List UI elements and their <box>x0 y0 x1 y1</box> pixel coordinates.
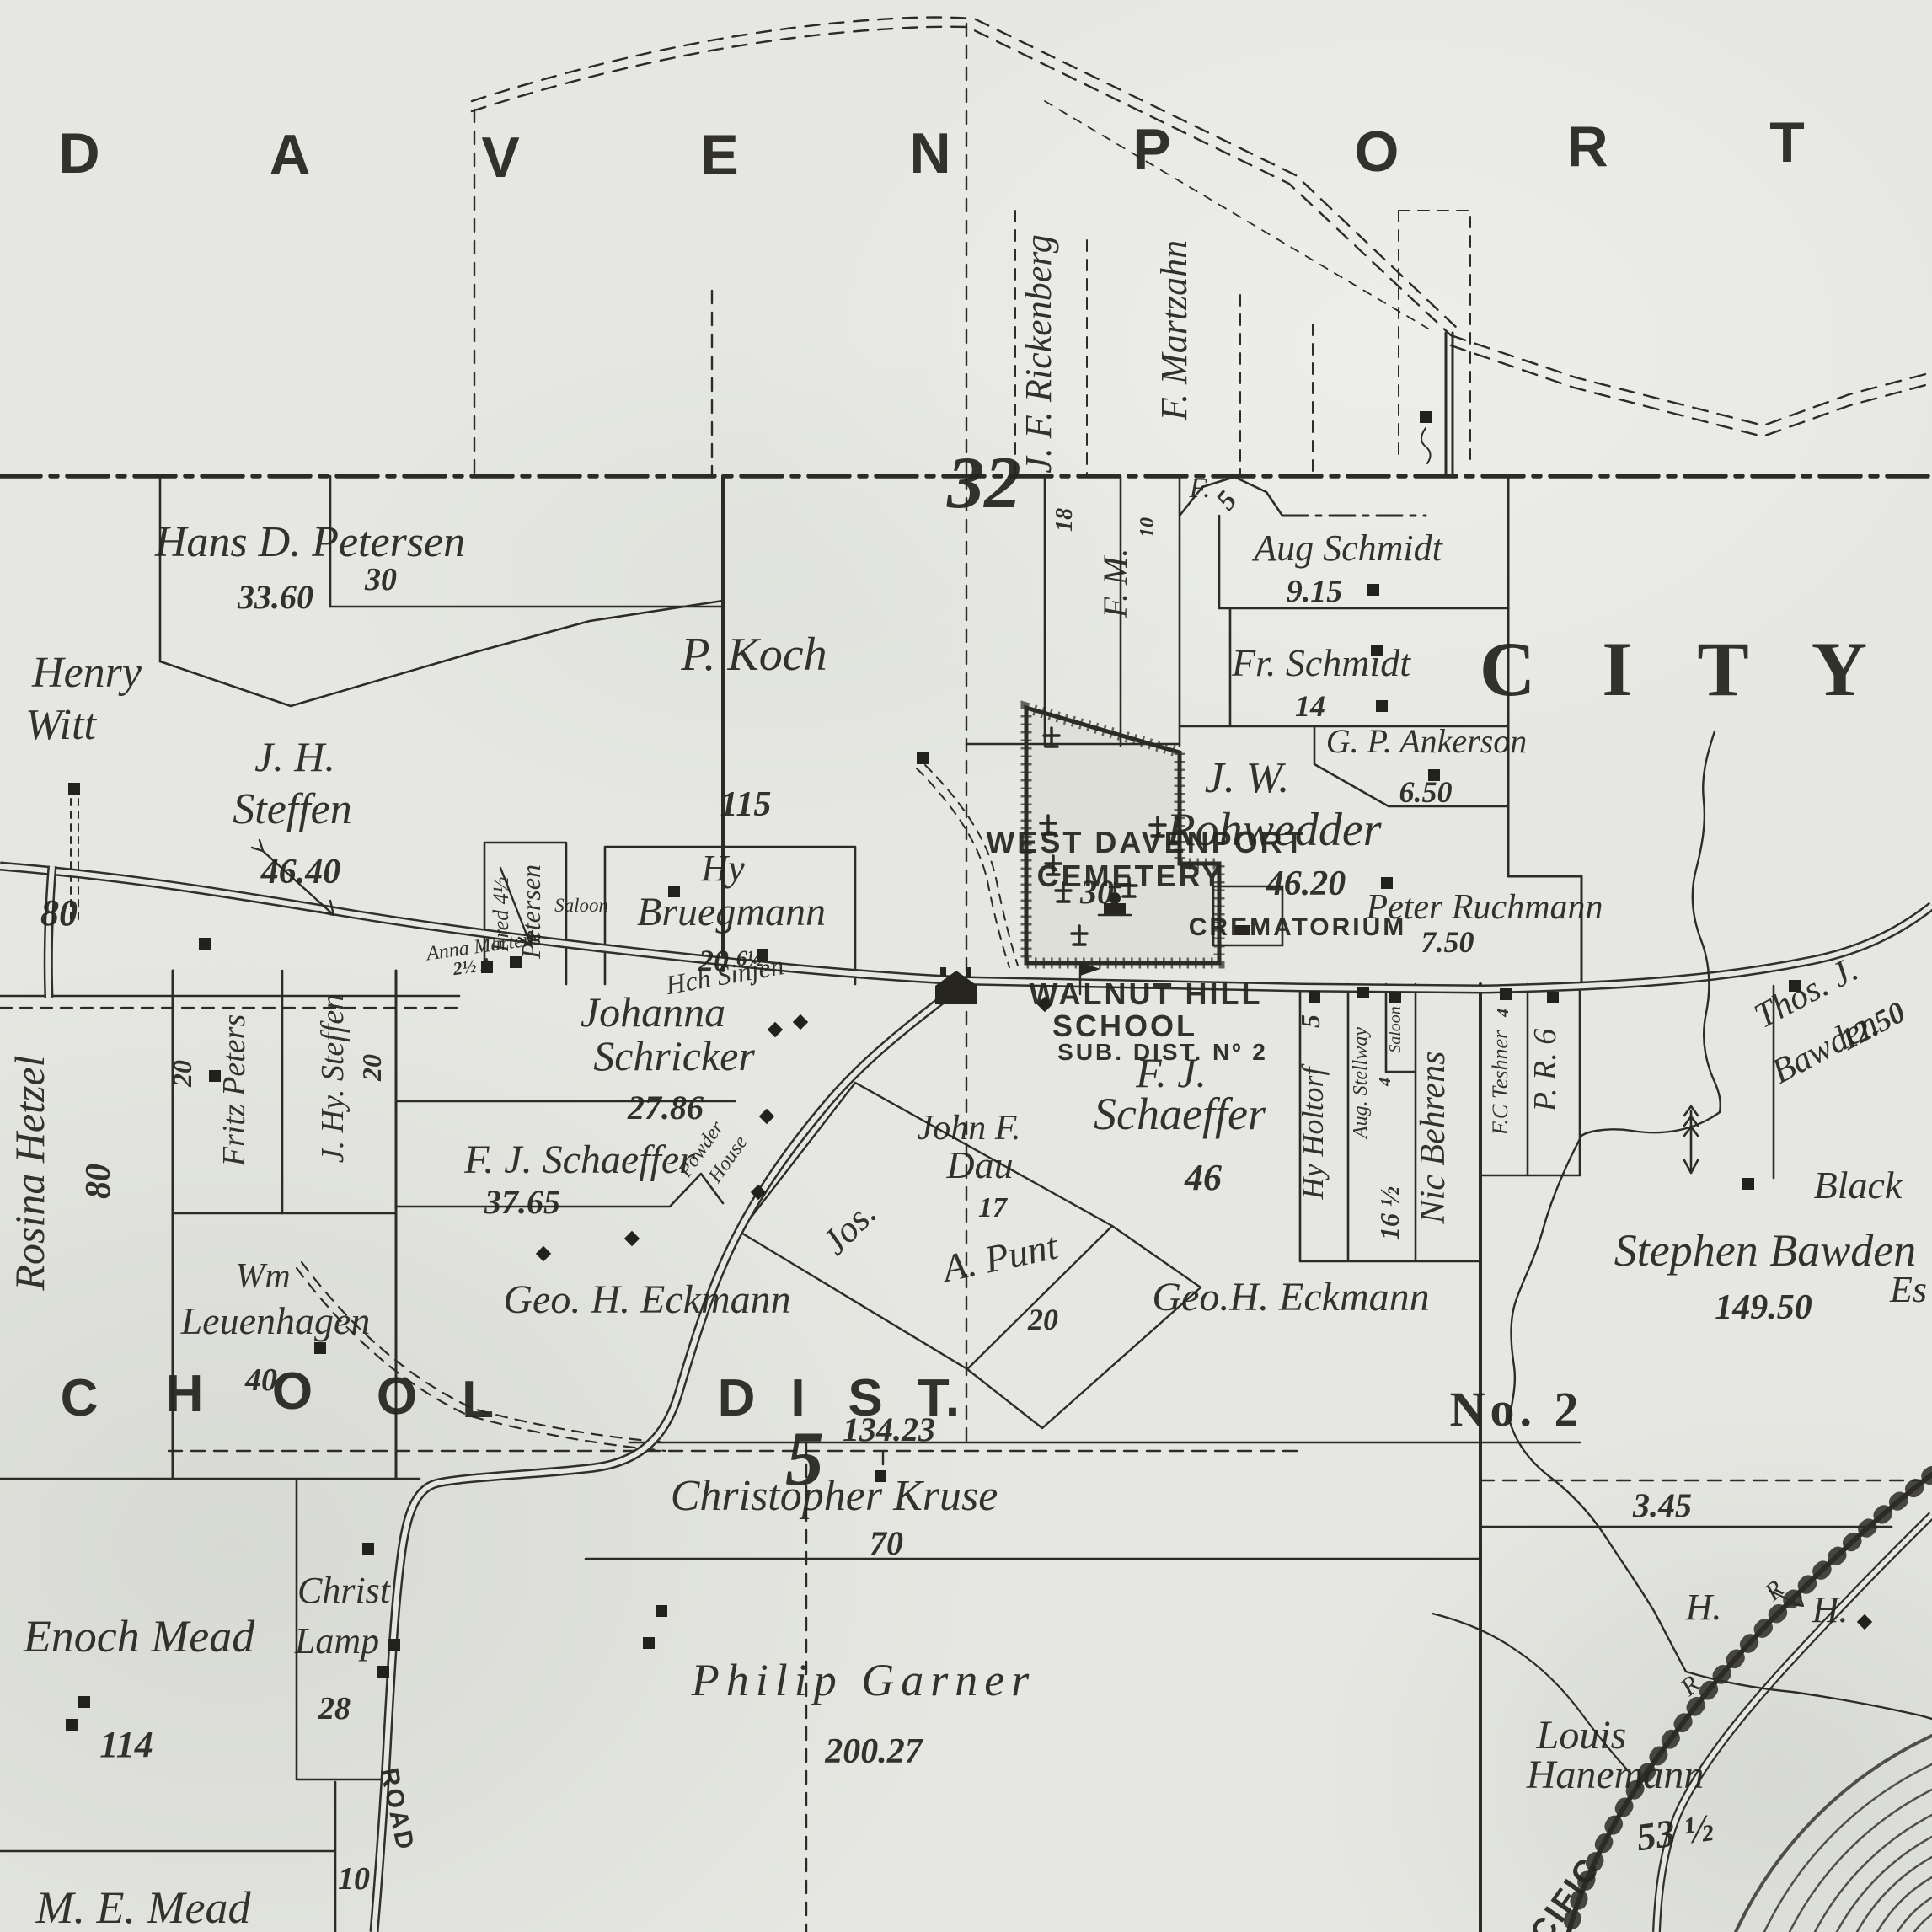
map-label: Philip Garner <box>691 1655 1036 1705</box>
map-label: 18 <box>1052 508 1078 532</box>
map-label: 46 <box>1184 1157 1222 1198</box>
map-label: Hanemann <box>1526 1753 1705 1797</box>
house-square-icon <box>377 1666 389 1678</box>
map-label: 7.50 <box>1421 925 1474 959</box>
map-label: 4 <box>1494 1009 1512 1018</box>
map-label: Geo. H. Eckmann <box>503 1277 790 1322</box>
railroad-parallel-road <box>1656 1515 1932 1932</box>
map-label: John F. <box>918 1109 1021 1148</box>
map-label: SCHOOL <box>1052 1009 1197 1043</box>
map-label: 33.60 <box>237 578 313 616</box>
map-label: H <box>166 1365 206 1423</box>
map-label: F. J. Schaeffer <box>463 1137 695 1182</box>
map-label: Christopher Kruse <box>671 1472 998 1520</box>
map-label: Fr. Schmidt <box>1231 641 1411 684</box>
map-label: H. <box>1685 1587 1722 1628</box>
map-label: Hans D. Petersen <box>154 518 465 566</box>
house-square-icon <box>78 1696 90 1708</box>
map-label: 3.45 <box>1632 1486 1692 1524</box>
house-square-icon <box>1357 987 1369 998</box>
map-label: P. R. 6 <box>1528 1029 1563 1113</box>
map-label: V <box>481 126 521 190</box>
house-square-icon <box>1376 700 1388 712</box>
house-diamond-icon <box>768 1022 783 1037</box>
map-label: Jos. <box>814 1192 885 1263</box>
map-label: R <box>1566 115 1609 179</box>
map-label: 10 <box>1137 517 1159 538</box>
house-diamond-icon <box>536 1246 551 1261</box>
map-label: 46.40 <box>260 853 341 891</box>
map-label: 17 <box>978 1192 1009 1223</box>
map-label: O <box>272 1362 314 1421</box>
map-label: 32 <box>946 442 1021 524</box>
map-label: 46.20 <box>1266 864 1346 903</box>
map-label: F.C Teshner <box>1488 1030 1512 1136</box>
house-square-icon <box>388 1639 400 1651</box>
map-label: Louis <box>1536 1713 1627 1758</box>
map-label: 80 <box>40 892 78 934</box>
house-diamond-icon <box>759 1109 774 1124</box>
map-label: P <box>1132 117 1172 181</box>
map-label: Schaeffer <box>1094 1089 1266 1139</box>
house-diamond-icon <box>1857 1614 1872 1630</box>
map-label: Black <box>1814 1164 1903 1207</box>
map-label: 9.15 <box>1287 574 1343 609</box>
map-label: 20 <box>167 1060 197 1088</box>
map-label: Christ <box>297 1570 392 1611</box>
map-label: N <box>909 121 952 185</box>
map-label: 5 <box>1210 485 1243 516</box>
map-label: 20 <box>1027 1303 1058 1336</box>
map-label: WEST DAVENPORT <box>986 825 1305 859</box>
river-bluff-hatching <box>1736 1736 1932 1932</box>
map-label: Aug Schmidt <box>1251 527 1443 569</box>
map-label: H. <box>1812 1589 1849 1630</box>
map-label: 6.50 <box>1399 775 1453 809</box>
map-label: Hy <box>700 848 745 889</box>
map-label: F. Martzahn <box>1153 240 1195 421</box>
map-label: Enoch Mead <box>23 1611 255 1662</box>
map-label: 30 <box>1079 873 1114 911</box>
map-label: Wm <box>235 1257 290 1296</box>
house-square-icon <box>199 938 211 950</box>
map-label: A. Punt <box>936 1223 1062 1290</box>
map-label: Witt <box>25 701 97 749</box>
map-label: Bruegmann <box>637 890 826 934</box>
house-diamond-icon <box>624 1231 640 1246</box>
township-boundary-road <box>472 18 1458 336</box>
map-label: Leuenhagen <box>180 1299 371 1342</box>
map-label: Es <box>1889 1269 1927 1310</box>
map-label: Henry <box>31 649 142 697</box>
map-label: No. 2 <box>1450 1382 1584 1437</box>
house-diamond-icon <box>793 1014 808 1030</box>
map-label: L <box>462 1371 495 1429</box>
map-label: M. E. Mead <box>35 1882 252 1932</box>
map-label: Johanna <box>581 988 725 1036</box>
map-label: 10 <box>338 1861 370 1897</box>
schoolhouse-icon <box>935 967 977 1004</box>
house-square-icon <box>1367 584 1379 596</box>
house-square-icon <box>643 1637 655 1649</box>
map-label: E <box>700 123 740 187</box>
map-label: A <box>269 123 312 187</box>
map-label: Lamp <box>294 1620 379 1662</box>
map-label: T <box>1769 110 1806 174</box>
house-square-icon <box>1742 1178 1754 1190</box>
map-label: CEMETERY <box>1037 859 1225 893</box>
map-label: J. F. Rickenberg <box>1018 234 1059 473</box>
map-label: C I T Y <box>1480 626 1891 712</box>
map-label: Geo.H. Eckmann <box>1152 1275 1429 1319</box>
map-label: Rosina Hetzel <box>6 1055 53 1291</box>
map-label: J. H. <box>254 733 335 780</box>
map-label: F. <box>1189 473 1211 504</box>
map-label: 149.50 <box>1715 1288 1812 1327</box>
map-label: 6½ <box>736 946 764 971</box>
map-label: 4 <box>1376 1078 1394 1087</box>
house-square-icon <box>656 1605 667 1617</box>
map-label: Aug. Stellway <box>1350 1027 1372 1140</box>
house-square-icon <box>362 1543 374 1555</box>
plat-map-canvas: DAVENPORTC I T Y325Hans D. Petersen33.60… <box>0 0 1932 1932</box>
map-label: P. Koch <box>680 629 827 681</box>
map-label: Stephen Bawden <box>1614 1225 1916 1276</box>
map-label: PACIFIC <box>1496 1850 1608 1932</box>
map-label: O <box>377 1367 419 1426</box>
map-label: 114 <box>99 1724 153 1765</box>
map-label: F. M. <box>1096 549 1134 619</box>
survey-hook <box>1421 428 1431 463</box>
map-label: T. <box>918 1369 961 1427</box>
map-label: Schricker <box>593 1032 755 1079</box>
map-label: Saloon <box>1386 1006 1405 1053</box>
house-square-icon <box>1389 992 1401 1003</box>
map-label: I <box>790 1369 806 1427</box>
map-label: 30 <box>364 562 397 597</box>
house-square-icon <box>1547 992 1559 1003</box>
map-label: Saloon <box>554 895 608 916</box>
map-label: 14 <box>1295 689 1325 723</box>
house-square-icon <box>314 1342 326 1354</box>
map-label: 16 ½ <box>1374 1186 1405 1240</box>
map-label: 200.27 <box>824 1732 924 1771</box>
house-square-icon <box>1309 991 1320 1003</box>
map-label: 70 <box>870 1524 903 1562</box>
house-square-icon <box>917 752 929 764</box>
map-label: Dau <box>945 1143 1013 1186</box>
map-label: 37.65 <box>484 1183 560 1221</box>
map-label: WALNUT HILL <box>1030 977 1263 1011</box>
map-label: 20 <box>356 1054 387 1082</box>
northeast-dashed-road <box>1446 333 1932 476</box>
map-label: 12.50 <box>1834 995 1910 1057</box>
map-label: Nic Behrens <box>1414 1052 1453 1225</box>
map-label: D <box>58 121 101 185</box>
map-label: J. W. <box>1205 754 1290 802</box>
map-label: 115 <box>720 785 772 824</box>
map-label: G. P. Ankerson <box>1326 722 1528 760</box>
map-label: 27.86 <box>627 1089 704 1127</box>
map-label: D <box>718 1369 757 1427</box>
map-label: Steffen <box>233 785 352 833</box>
map-label: 2½ A <box>451 953 494 979</box>
map-label: 28 <box>318 1691 351 1726</box>
map-label: J. Hy. Steffen <box>315 994 351 1163</box>
house-square-icon <box>1420 411 1432 423</box>
house-square-icon <box>1500 988 1512 1000</box>
plat-map: DAVENPORTC I T Y325Hans D. Petersen33.60… <box>0 0 1932 1932</box>
house-square-icon <box>68 783 80 795</box>
map-label: Hy Holtorf <box>1296 1063 1330 1201</box>
map-label: 53 ½ <box>1634 1806 1716 1859</box>
map-label: 80 <box>79 1164 118 1199</box>
map-label: Peter Ruchmann <box>1365 888 1603 927</box>
map-label: O <box>1355 120 1401 184</box>
map-label: 5 <box>1295 1014 1325 1028</box>
map-label: Fritz Peters <box>217 1014 252 1167</box>
house-square-icon <box>66 1719 78 1731</box>
house-square-icon <box>1381 877 1393 889</box>
map-label: S <box>848 1369 884 1427</box>
map-label: C <box>61 1369 100 1427</box>
